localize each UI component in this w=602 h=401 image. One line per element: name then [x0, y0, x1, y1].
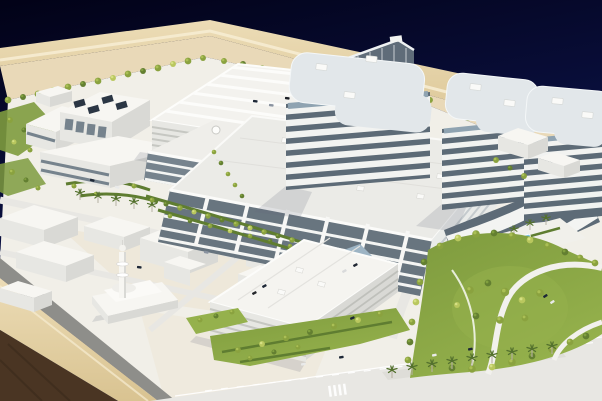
tower-1: [286, 51, 436, 190]
architectural-model-photo: [0, 0, 602, 401]
rooftop-dish: [212, 126, 220, 134]
